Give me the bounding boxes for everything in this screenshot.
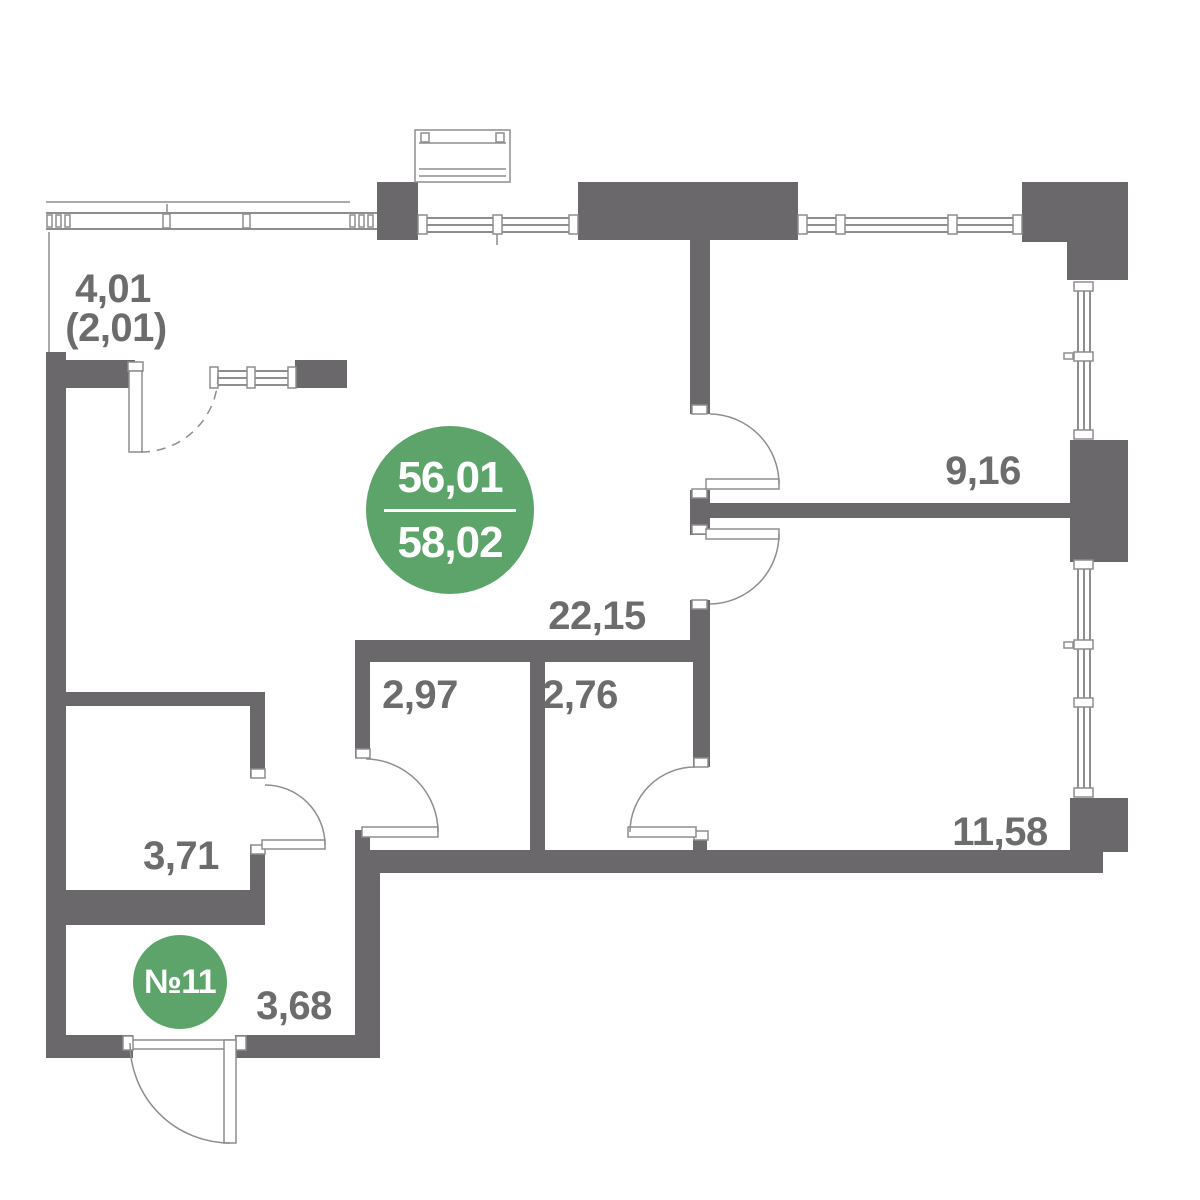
bedroom-top-door — [692, 405, 779, 498]
balcony-reduced-area-label: (2,01) — [65, 308, 167, 348]
balcony-lower-window — [210, 367, 296, 388]
bedroom-top-area-label: 9,16 — [945, 451, 1021, 491]
entrance-door — [123, 1036, 246, 1143]
bay-window — [415, 130, 510, 182]
bedroom-top-right-window — [1064, 282, 1093, 439]
area-badge-divider — [384, 509, 516, 512]
unit-number-value: №11 — [144, 963, 216, 1002]
bathroom-area-label: 3,71 — [143, 836, 219, 876]
bedroom-bottom-door — [692, 525, 779, 609]
balcony-door — [128, 362, 218, 452]
balcony-area-label: 4,01 — [75, 269, 151, 309]
total-area-value: 58,02 — [397, 521, 502, 565]
bedroom-top-window — [798, 215, 1022, 234]
bedroom-bottom-right-window — [1064, 560, 1093, 797]
storage-left-door — [356, 749, 438, 837]
bathroom-door — [251, 769, 325, 854]
living-top-window — [418, 215, 578, 245]
unit-number-badge: №11 — [133, 935, 227, 1029]
storage-left-area-label: 2,97 — [382, 675, 458, 715]
total-area-badge: 56,01 58,02 — [366, 426, 534, 594]
floor-plan: 4,01 (2,01) 9,16 22,15 2,97 2,76 3,71 11… — [0, 0, 1200, 1200]
storage-right-area-label: 2,76 — [542, 675, 618, 715]
entry-area-label: 3,68 — [256, 986, 332, 1026]
living-area-label: 22,15 — [548, 596, 646, 636]
storage-right-door — [628, 758, 708, 840]
living-area-value: 56,01 — [397, 456, 502, 500]
bedroom-bottom-area-label: 11,58 — [952, 812, 1047, 852]
